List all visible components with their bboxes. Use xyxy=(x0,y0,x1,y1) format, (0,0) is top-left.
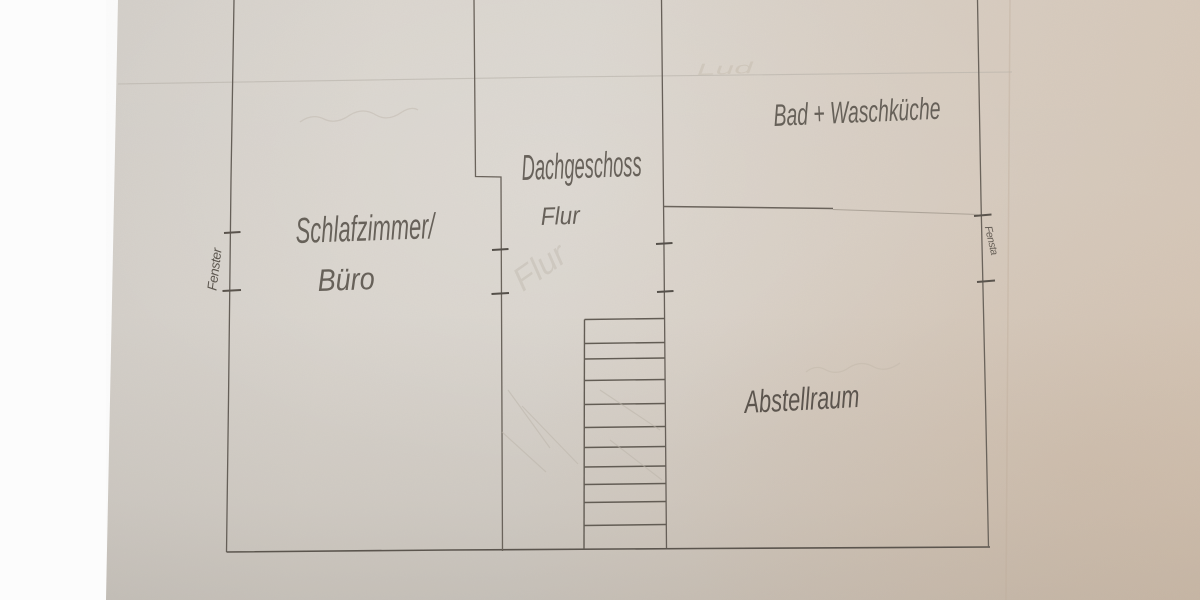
svg-text:Schlafzimmer/: Schlafzimmer/ xyxy=(295,205,438,251)
svg-text:Büro: Büro xyxy=(317,261,375,298)
svg-text:Flur: Flur xyxy=(540,202,581,231)
svg-text:Lud: Lud xyxy=(697,60,756,79)
svg-text:Abstellraum: Abstellraum xyxy=(742,378,860,420)
svg-text:Dachgeschoss: Dachgeschoss xyxy=(521,143,642,188)
svg-text:Bad + Waschküche: Bad + Waschküche xyxy=(773,91,941,133)
